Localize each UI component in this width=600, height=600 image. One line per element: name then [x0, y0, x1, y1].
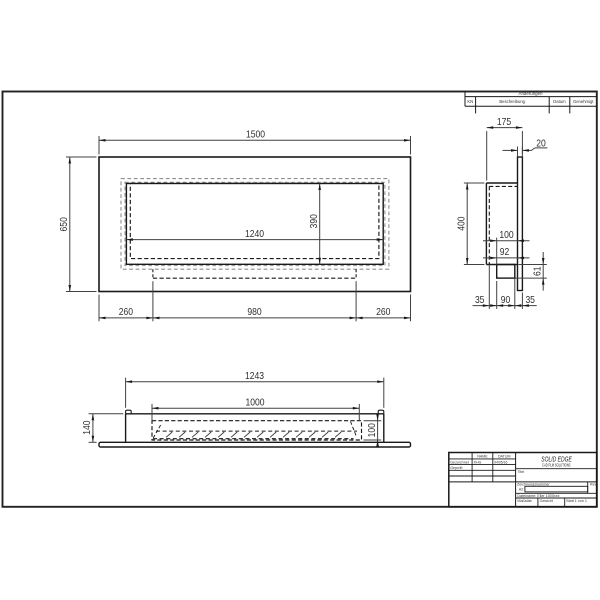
svg-text:61: 61 — [532, 266, 543, 276]
svg-text:KN: KN — [467, 99, 473, 104]
svg-text:NAME: NAME — [477, 455, 488, 459]
svg-text:1500: 1500 — [246, 129, 265, 140]
svg-text:KHG: KHG — [474, 460, 482, 464]
svg-text:980: 980 — [247, 307, 262, 318]
svg-text:1243: 1243 — [245, 371, 264, 382]
svg-text:90: 90 — [501, 295, 511, 306]
svg-text:CAD PLM SOLUTIONS: CAD PLM SOLUTIONS — [542, 463, 571, 468]
svg-text:140: 140 — [82, 420, 93, 435]
svg-text:390: 390 — [309, 214, 320, 229]
svg-text:400: 400 — [456, 216, 467, 231]
svg-text:Blatt 1 von 1: Blatt 1 von 1 — [566, 499, 587, 503]
svg-text:Titel: Titel — [517, 470, 524, 474]
svg-text:Änderungen: Änderungen — [519, 91, 543, 96]
svg-text:35: 35 — [525, 295, 535, 306]
svg-text:650: 650 — [59, 217, 70, 232]
svg-text:A2: A2 — [519, 488, 524, 492]
svg-text:Dateiname: Eller 1000xxx: Dateiname: Eller 1000xxx — [517, 494, 559, 498]
svg-text:Beschreibung: Beschreibung — [499, 99, 525, 104]
svg-text:Maßstab: Maßstab — [517, 499, 531, 503]
svg-text:20: 20 — [536, 139, 546, 150]
svg-text:Geprüft: Geprüft — [450, 466, 462, 470]
svg-text:260: 260 — [376, 307, 391, 318]
svg-text:92: 92 — [500, 247, 510, 258]
svg-text:Rev: Rev — [590, 483, 597, 487]
svg-text:Gewicht: Gewicht — [540, 499, 553, 503]
svg-text:04/05/16: 04/05/16 — [494, 460, 507, 464]
svg-text:Datum: Datum — [553, 99, 566, 104]
svg-text:1240: 1240 — [245, 229, 264, 240]
svg-text:Gezeichnet: Gezeichnet — [450, 460, 469, 464]
svg-text:100: 100 — [499, 230, 514, 241]
svg-text:1000: 1000 — [245, 397, 264, 408]
svg-text:DATUM: DATUM — [498, 455, 511, 459]
svg-text:Genehmigt: Genehmigt — [573, 99, 594, 104]
svg-text:175: 175 — [497, 117, 512, 128]
svg-text:100: 100 — [367, 423, 378, 438]
svg-text:35: 35 — [475, 295, 485, 306]
svg-text:260: 260 — [119, 307, 134, 318]
